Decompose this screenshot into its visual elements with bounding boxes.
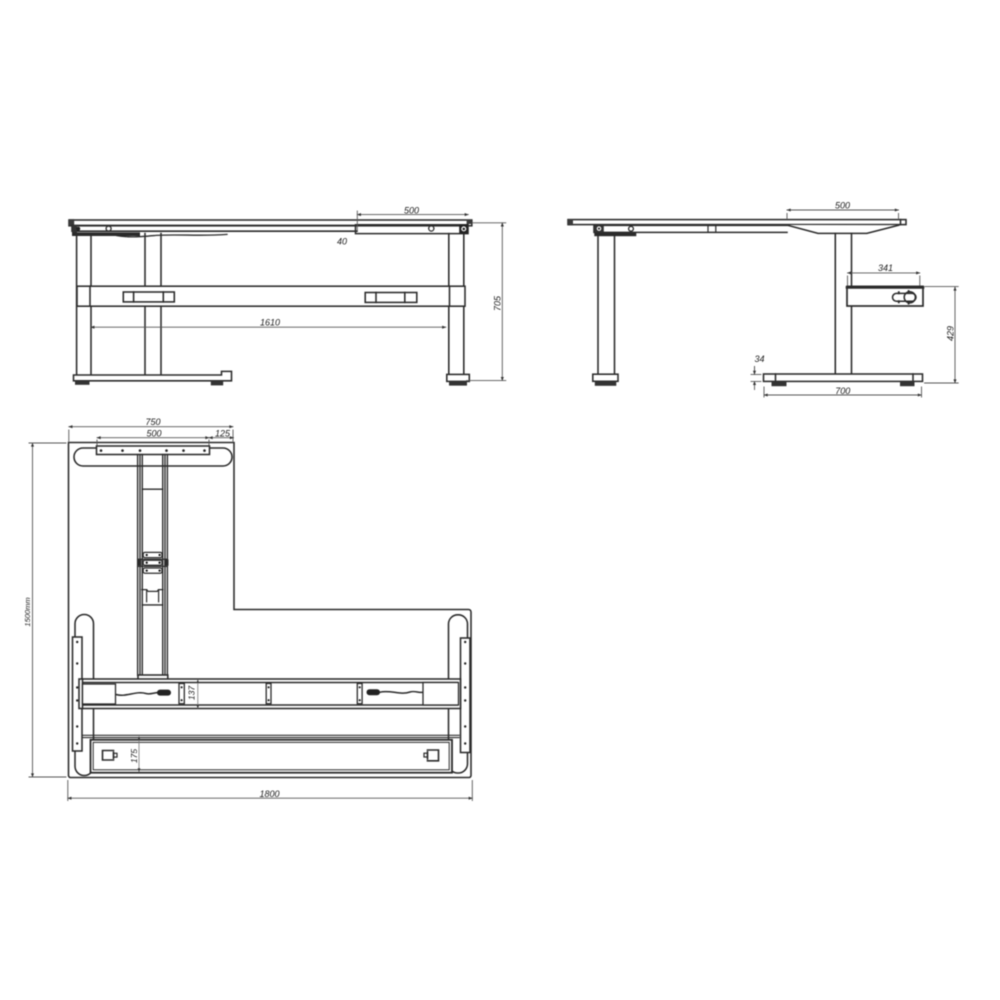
svg-text:1500mm: 1500mm (23, 597, 32, 626)
svg-text:137: 137 (187, 685, 197, 701)
svg-text:175: 175 (129, 749, 139, 764)
svg-text:500: 500 (835, 200, 850, 210)
svg-text:40: 40 (337, 237, 347, 247)
svg-text:125: 125 (215, 428, 231, 438)
svg-text:429: 429 (946, 326, 956, 341)
svg-text:341: 341 (878, 263, 893, 273)
svg-text:1800: 1800 (259, 789, 279, 799)
svg-text:34: 34 (754, 354, 764, 364)
svg-text:500: 500 (146, 428, 161, 438)
svg-text:700: 700 (835, 386, 850, 396)
svg-text:500: 500 (404, 205, 419, 215)
svg-text:750: 750 (145, 417, 160, 427)
svg-text:705: 705 (493, 295, 503, 311)
svg-text:1610: 1610 (260, 318, 280, 328)
